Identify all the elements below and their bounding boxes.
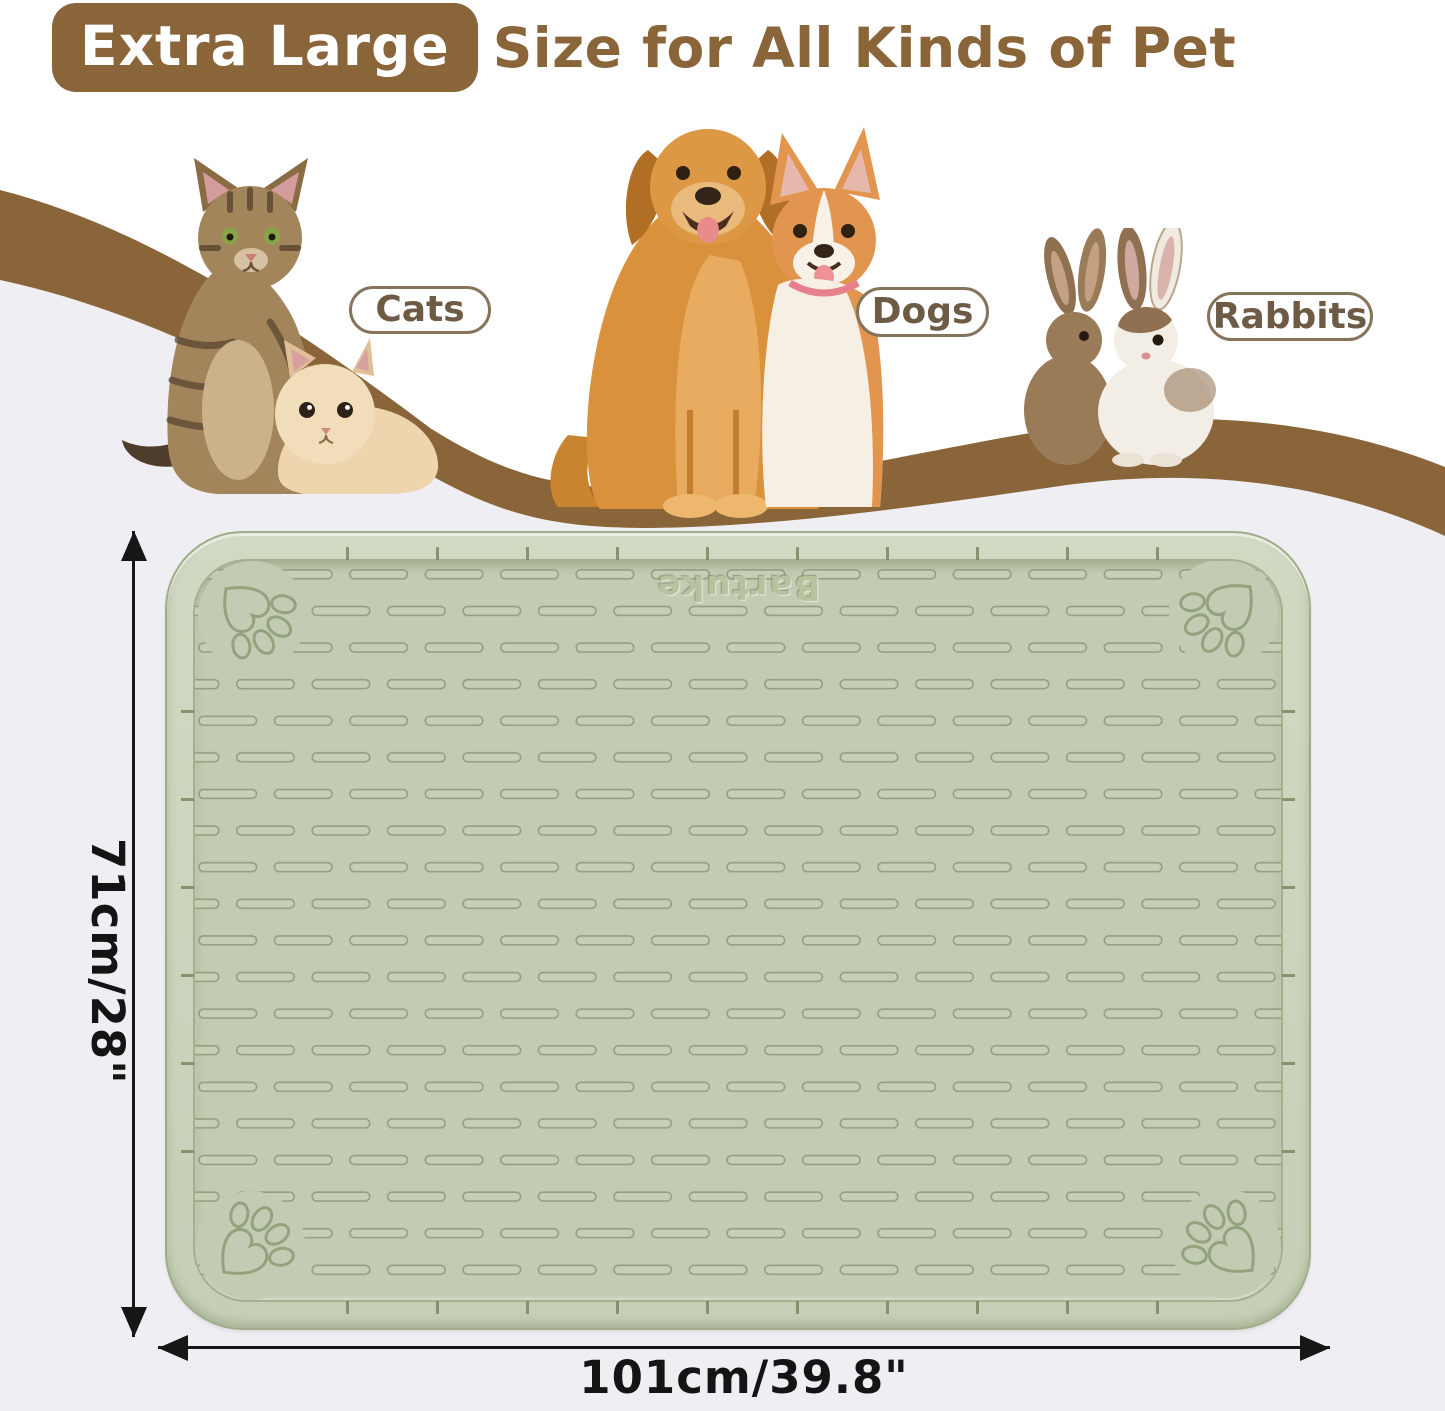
mat-texture	[195, 561, 1281, 1300]
product-infographic: Extra Large Size for All Kinds of Pet	[0, 0, 1445, 1411]
width-dimension-label: 101cm/39.8"	[158, 1351, 1330, 1404]
brand-embossed-text: Bartuke	[656, 567, 821, 607]
title-text: Size for All Kinds of Pet	[493, 16, 1236, 80]
page-title: Extra Large Size for All Kinds of Pet	[52, 3, 1236, 92]
height-dimension-label: 71cm/28"	[81, 838, 134, 1085]
width-dimension-arrow	[158, 1346, 1330, 1349]
label-rabbits: Rabbits	[1207, 292, 1373, 341]
mat-rim-ticks-right	[1282, 625, 1295, 1236]
rabbits-photo	[1008, 228, 1223, 468]
pet-feeding-mat: Bartuke	[165, 531, 1311, 1330]
label-cats: Cats	[349, 286, 491, 334]
mat-rim-ticks-left	[181, 625, 194, 1236]
title-badge: Extra Large	[52, 3, 478, 92]
mat-rim-ticks-top	[259, 547, 1217, 560]
mat-surface: Bartuke	[193, 559, 1283, 1302]
dogs-photo	[528, 105, 888, 520]
mat-rim-ticks-bottom	[259, 1301, 1217, 1314]
label-dogs: Dogs	[856, 287, 989, 337]
